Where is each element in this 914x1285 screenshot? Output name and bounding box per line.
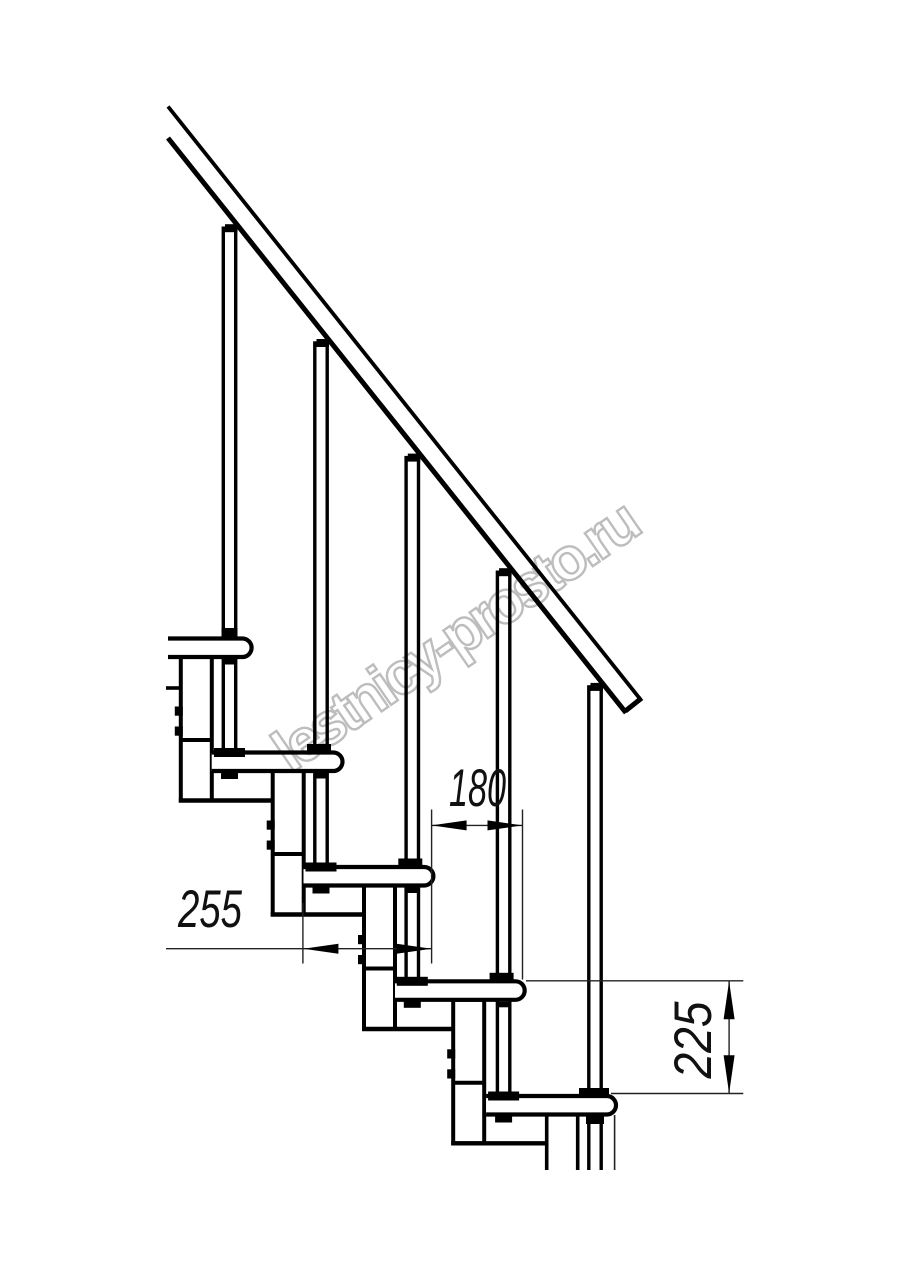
svg-text:255: 255 xyxy=(177,880,242,939)
svg-text:225: 225 xyxy=(664,1001,723,1079)
svg-text:180: 180 xyxy=(449,759,506,818)
